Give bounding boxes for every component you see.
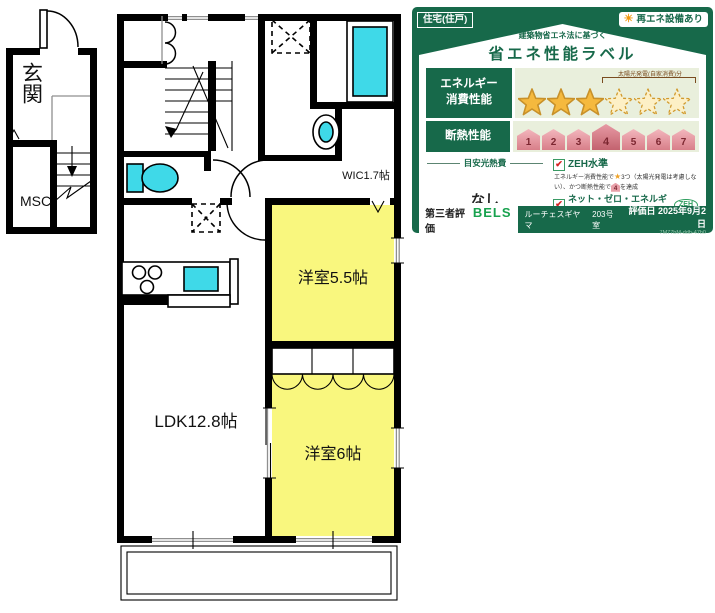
star-area: 太陽光発電(自家消費)分 (515, 68, 699, 118)
certification-bar: 第三者評価 BELS ルーチェスギヤマ 203号室 評価日 2025年9月2日 … (412, 206, 713, 233)
insulation-row-label: 断熱性能 (426, 121, 510, 152)
star-filled-icon (547, 88, 575, 116)
ldk-label: LDK12.8帖 (154, 412, 237, 431)
kitchen (122, 259, 238, 307)
insulation-grade-1: 1 (517, 129, 540, 150)
insulation-grade-4-achieved: 4 (592, 124, 620, 150)
insulation-grade-7: 7 (672, 129, 695, 150)
renewable-badge-text: 再エネ設備あり (636, 14, 703, 25)
cost-heading: 目安光熱費 (427, 157, 543, 169)
balcony (121, 546, 397, 600)
insulation-grade-2: 2 (542, 129, 565, 150)
floor-plan: 玄関 MSC (0, 0, 410, 613)
evaluation-info: 評価日 2025年9月2日 7M77bM-ddb-47b0 (626, 204, 706, 236)
stove-burner (133, 266, 146, 279)
star-solar-icon (605, 88, 633, 116)
zeh-description: エネルギー消費性能で★3つ（太陽光発電は考慮しない）、かつ断熱性能で4を達成 (554, 172, 698, 193)
cert-box: 第三者評価 BELS (419, 203, 518, 237)
zeh-check-row: ✔ ZEH水準 (553, 158, 698, 171)
cert-label: 第三者評価 (425, 205, 468, 235)
ldk-door-arc (227, 202, 265, 240)
renewable-badge: ☀ 再エネ設備あり (619, 12, 708, 27)
solar-bracket (602, 77, 696, 83)
checkbox-checked-icon: ✔ (553, 159, 565, 171)
energy-performance-label: 住宅(住戸) ☀ 再エネ設備あり 建築物省エネ法に基づく 省エネ性能ラベル エネ… (412, 7, 713, 233)
insulation-grade-3: 3 (567, 129, 590, 150)
stove-burner (149, 266, 162, 279)
star-filled-icon (518, 88, 546, 116)
insulation-grade-5: 5 (622, 129, 645, 150)
storage-label: MSC (20, 193, 51, 209)
bedroom-6-label: 洋室6帖 (305, 445, 362, 463)
star-solar-icon (663, 88, 691, 116)
insulation-grade-6: 6 (647, 129, 670, 150)
entrance-stairs (55, 146, 91, 201)
housing-type-badge: 住宅(住戸) (417, 12, 473, 28)
label-panel: 建築物省エネ法に基づく 省エネ性能ラベル エネルギー 消費性能 太陽光発電(自家… (419, 24, 706, 206)
evaluation-date: 評価日 2025年9月2日 (626, 204, 706, 230)
kitchen-sink (184, 267, 218, 291)
zeh-heading: ZEH水準 (568, 158, 608, 171)
bathtub-water (353, 27, 387, 96)
stairs-arrow-icon (165, 126, 177, 138)
washbasin-bowl (319, 122, 333, 142)
insulation-grade-area: 1234567 (513, 121, 699, 152)
entrance-door-arc (47, 11, 78, 47)
toilet-bowl (142, 164, 178, 192)
evaluation-code: 7M77bM-ddb-47b0 (626, 230, 706, 236)
energy-row-label: エネルギー 消費性能 (426, 68, 512, 118)
toilet-tank (127, 164, 143, 192)
sun-icon: ☀ (624, 14, 634, 25)
entrance-building: 玄関 MSC (6, 10, 97, 234)
house-grade-icon: 4 (611, 183, 620, 192)
law-note: 建築物省エネ法に基づく (419, 30, 706, 41)
bedroom-55-label: 洋室5.5帖 (298, 269, 368, 287)
stove-burner (141, 281, 154, 294)
star-solar-icon (634, 88, 662, 116)
star-filled-icon (576, 88, 604, 116)
entrance-door-leaf (40, 10, 47, 48)
building-name: ルーチェスギヤマ 203号室 (525, 209, 620, 231)
main-stairs (162, 16, 232, 151)
label-title: 省エネ性能ラベル (419, 42, 706, 64)
bels-logo: BELS (473, 205, 512, 220)
energy-consumption-row: エネルギー 消費性能 太陽光発電(自家消費)分 (426, 68, 699, 118)
wic-label: WIC1.7帖 (342, 169, 390, 182)
insulation-row: 断熱性能 1234567 (426, 121, 699, 152)
entrance-label: 玄関 (20, 62, 43, 104)
